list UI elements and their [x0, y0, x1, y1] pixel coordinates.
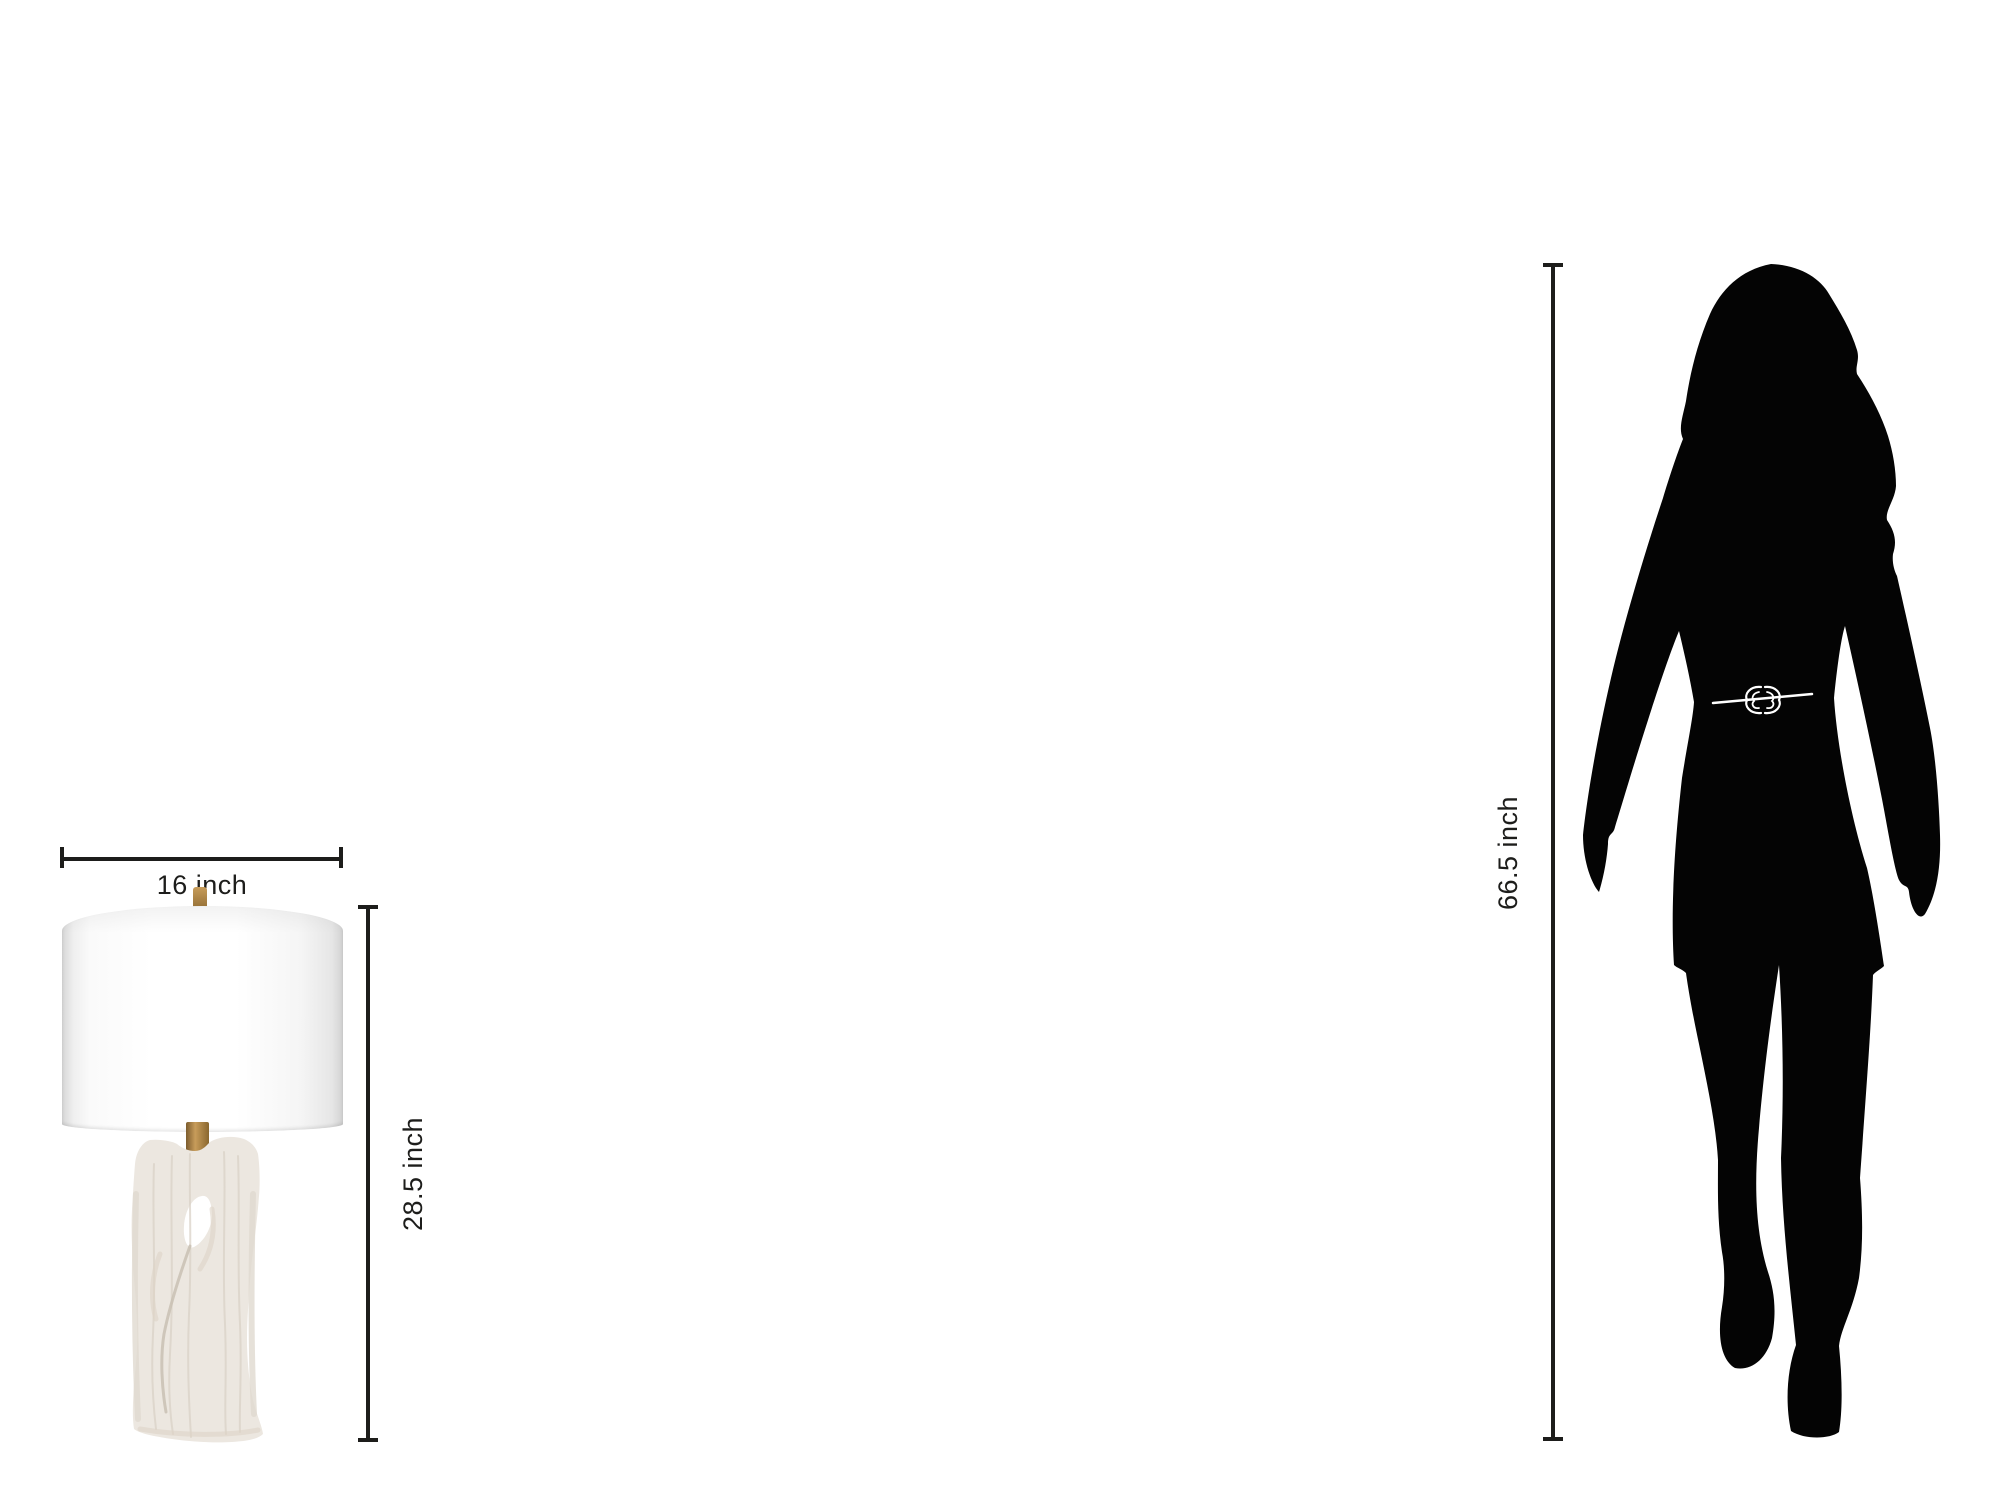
width-dimension-right-tick: [339, 847, 343, 868]
base-shading-right: [252, 1194, 254, 1414]
product-dimension-diagram: 16 inch 28.5 inch: [0, 0, 2000, 1500]
lamp-height-bottom-tick: [358, 1438, 378, 1442]
width-dimension-line: [62, 857, 342, 861]
figure-height-dimension-line: [1551, 263, 1555, 1441]
woman-silhouette: [1575, 258, 1945, 1443]
lamp-height-top-tick: [358, 905, 378, 909]
lamp-height-label: 28.5 inch: [398, 1074, 428, 1274]
lamp-shade: [62, 906, 343, 1132]
base-shading-left: [135, 1194, 138, 1419]
figure-height-bottom-tick: [1543, 1437, 1563, 1441]
figure-height-label: 66.5 inch: [1493, 753, 1523, 953]
lamp-height-dimension-line: [366, 907, 370, 1440]
width-dimension-left-tick: [60, 847, 64, 868]
lamp-base: [120, 1134, 270, 1446]
figure-height-top-tick: [1543, 263, 1563, 267]
